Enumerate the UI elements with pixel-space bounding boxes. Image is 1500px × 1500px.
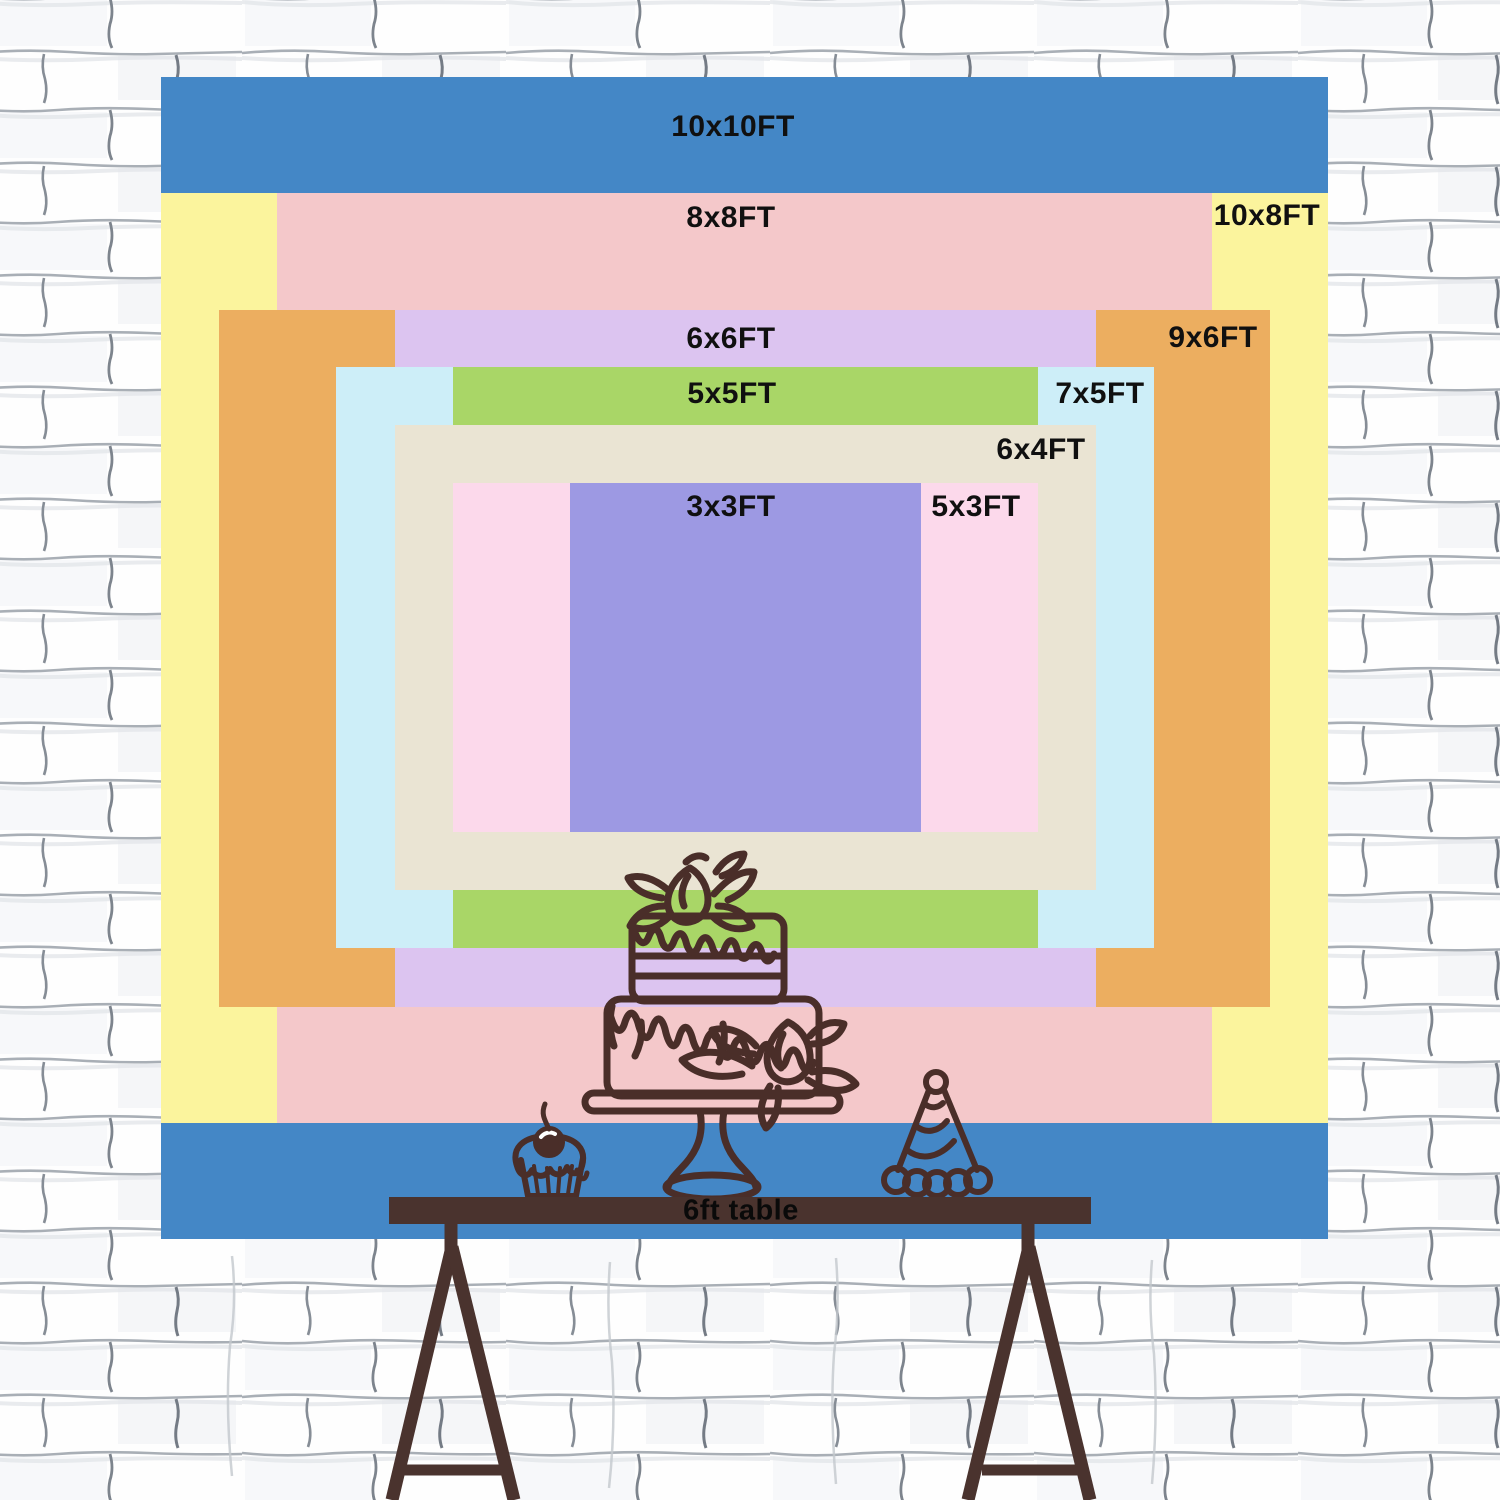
cupcake-drawing: [515, 1104, 587, 1196]
table-legs: [392, 1223, 1090, 1500]
birthday-cake-drawing: [585, 854, 856, 1199]
cupcake-cup: [521, 1158, 583, 1196]
cake-plate: [585, 1093, 840, 1111]
backdrop-size-chart: 10x10FT10x8FT8x8FT9x6FT6x6FT7x5FT5x5FT6x…: [0, 0, 1500, 1500]
party-hat-drawing: [884, 1072, 990, 1196]
table-label: 6ft table: [683, 1195, 799, 1228]
line-art-overlay: [0, 0, 1500, 1500]
cherry-stem: [543, 1104, 549, 1129]
